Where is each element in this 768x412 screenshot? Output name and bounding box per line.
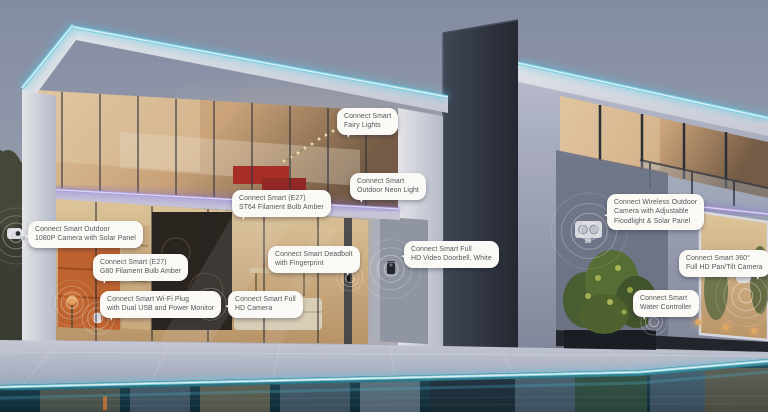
callout-water-controller: Connect Smart Water Controller — [633, 290, 699, 317]
callout-line: HD Camera — [235, 304, 296, 313]
callout-deadbolt: Connect Smart Deadbolt with Fingerprint — [268, 246, 360, 273]
callout-line: ST64 Filament Bulb Amber — [239, 203, 324, 212]
callout-line: Connect Smart 360° — [686, 254, 763, 263]
callout-line: Fairy Lights — [344, 121, 391, 130]
callout-wireless-floodlight-camera: Connect Wireless Outdoor Camera with Adj… — [607, 194, 704, 230]
callout-line: Floodlight & Solar Panel — [614, 217, 697, 226]
callout-pan-tilt-camera: Connect Smart 360° Full HD Pan/Tilt Came… — [679, 250, 768, 277]
callout-line: with Dual USB and Power Monitor — [107, 304, 214, 313]
callout-outdoor-neon-light: Connect Smart Outdoor Neon Light — [350, 173, 426, 200]
callout-line: Connect Smart Outdoor — [35, 225, 136, 234]
callout-line: Connect Smart — [640, 294, 692, 303]
callout-line: Connect Wireless Outdoor — [614, 198, 697, 207]
callout-line: Camera with Adjustable — [614, 207, 697, 216]
callout-video-doorbell: Connect Smart Full HD Video Doorbell, Wh… — [404, 241, 499, 268]
callout-st64-filament-bulb: Connect Smart (E27) ST64 Filament Bulb A… — [232, 190, 331, 217]
callout-line: Water Controller — [640, 303, 692, 312]
callout-outdoor-camera-solar: Connect Smart Outdoor 1080P Camera with … — [28, 221, 143, 248]
callout-g80-filament-bulb: Connect Smart (E27) G80 Filament Bulb Am… — [93, 254, 188, 281]
callout-line: with Fingerprint — [275, 259, 353, 268]
callout-line: Connect Smart Full — [235, 295, 296, 304]
callout-line: Connect Smart — [344, 112, 391, 121]
callout-line: Connect Smart Deadbolt — [275, 250, 353, 259]
callout-line: Outdoor Neon Light — [357, 186, 419, 195]
callout-line: Connect Smart — [357, 177, 419, 186]
callout-line: Connect Smart Wi-Fi Plug — [107, 295, 214, 304]
callout-line: Connect Smart (E27) — [239, 194, 324, 203]
callout-line: Connect Smart Full — [411, 245, 492, 254]
callout-line: Connect Smart (E27) — [100, 258, 181, 267]
callout-line: HD Video Doorbell, White — [411, 254, 492, 263]
callout-fairy-lights: Connect Smart Fairy Lights — [337, 108, 398, 135]
callout-line: G80 Filament Bulb Amber — [100, 267, 181, 276]
smart-home-banner: Connect Smart Outdoor 1080P Camera with … — [0, 0, 768, 412]
callout-line: Full HD Pan/Tilt Camera — [686, 263, 763, 272]
callout-line: 1080P Camera with Solar Panel — [35, 234, 136, 243]
callout-wifi-plug: Connect Smart Wi-Fi Plug with Dual USB a… — [100, 291, 221, 318]
callout-full-hd-camera: Connect Smart Full HD Camera — [228, 291, 303, 318]
